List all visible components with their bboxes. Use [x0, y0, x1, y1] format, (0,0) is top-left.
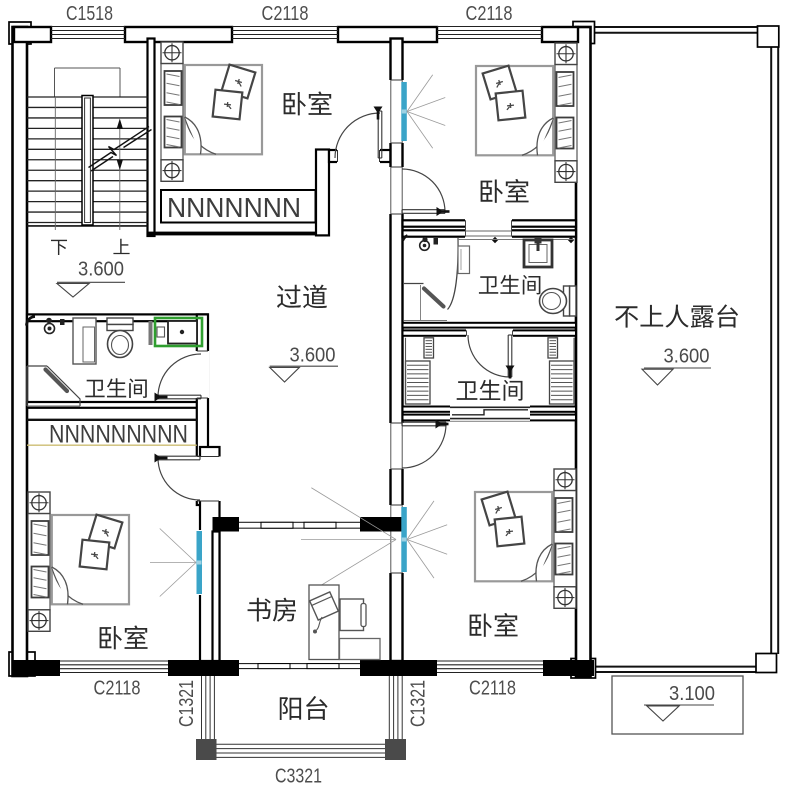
- svg-text:3.600: 3.600: [664, 346, 710, 368]
- svg-text:NNNNNNNNN: NNNNNNNNN: [49, 421, 188, 449]
- svg-text:3.100: 3.100: [669, 683, 715, 705]
- svg-text:C2118: C2118: [262, 3, 309, 25]
- svg-text:C1321: C1321: [176, 680, 198, 727]
- svg-text:C3321: C3321: [275, 766, 322, 788]
- svg-text:C2118: C2118: [469, 678, 516, 700]
- svg-text:3.600: 3.600: [78, 259, 124, 281]
- svg-text:3.600: 3.600: [290, 345, 336, 367]
- svg-text:NNNNNNN: NNNNNNN: [167, 192, 301, 223]
- svg-text:C1321: C1321: [408, 680, 430, 727]
- svg-text:C2118: C2118: [466, 3, 513, 25]
- svg-text:C1518: C1518: [66, 3, 113, 25]
- svg-text:C2118: C2118: [94, 678, 141, 700]
